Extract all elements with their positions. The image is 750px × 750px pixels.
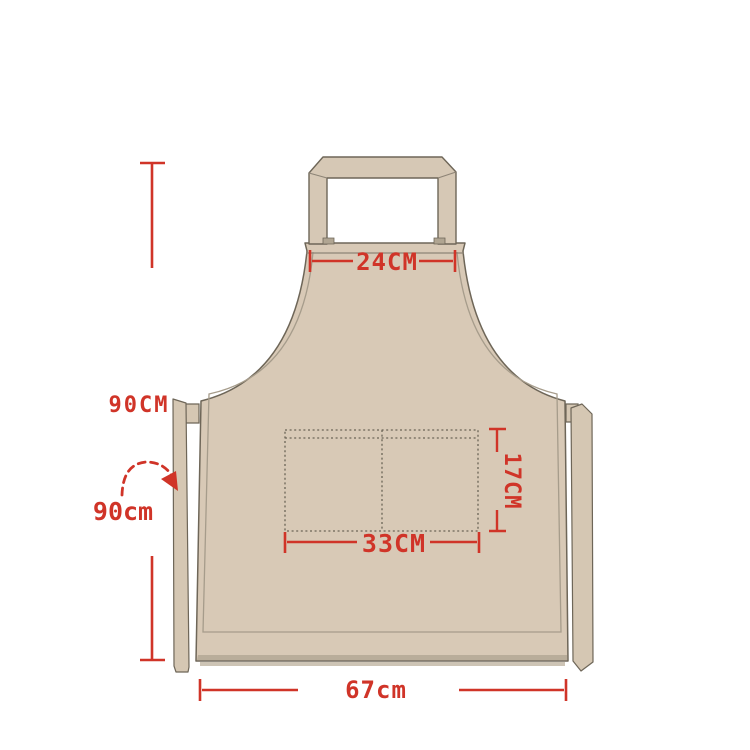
right-waist-tie <box>566 404 593 671</box>
apron-hem-band <box>197 655 567 660</box>
dimension-label-pocket-width: 33CM <box>356 531 432 556</box>
dimension-label-waist-tie-length: 90cm <box>88 499 158 524</box>
dimension-label-neck-width: 24CM <box>352 250 422 274</box>
dimension-label-bottom-width: 67cm <box>338 678 414 702</box>
curved-arrow-icon <box>122 462 178 495</box>
curved-arrow-head <box>161 471 178 491</box>
apron-size-diagram: 24CM 90CM 90cm 17CM 33CM 67cm <box>0 0 750 750</box>
right-waist-tie-strap <box>571 404 593 671</box>
dimension-label-body-length: 90CM <box>103 395 175 417</box>
left-waist-tie-strap <box>173 399 189 672</box>
neck-strap-loop <box>309 157 456 244</box>
dimension-label-pocket-height: 17CM <box>500 446 522 516</box>
left-waist-tie <box>173 399 199 672</box>
left-waist-tie-tab <box>185 404 199 423</box>
apron-hem-shadow <box>200 662 565 666</box>
neck-strap <box>309 157 456 244</box>
apron-drawing <box>0 0 750 750</box>
